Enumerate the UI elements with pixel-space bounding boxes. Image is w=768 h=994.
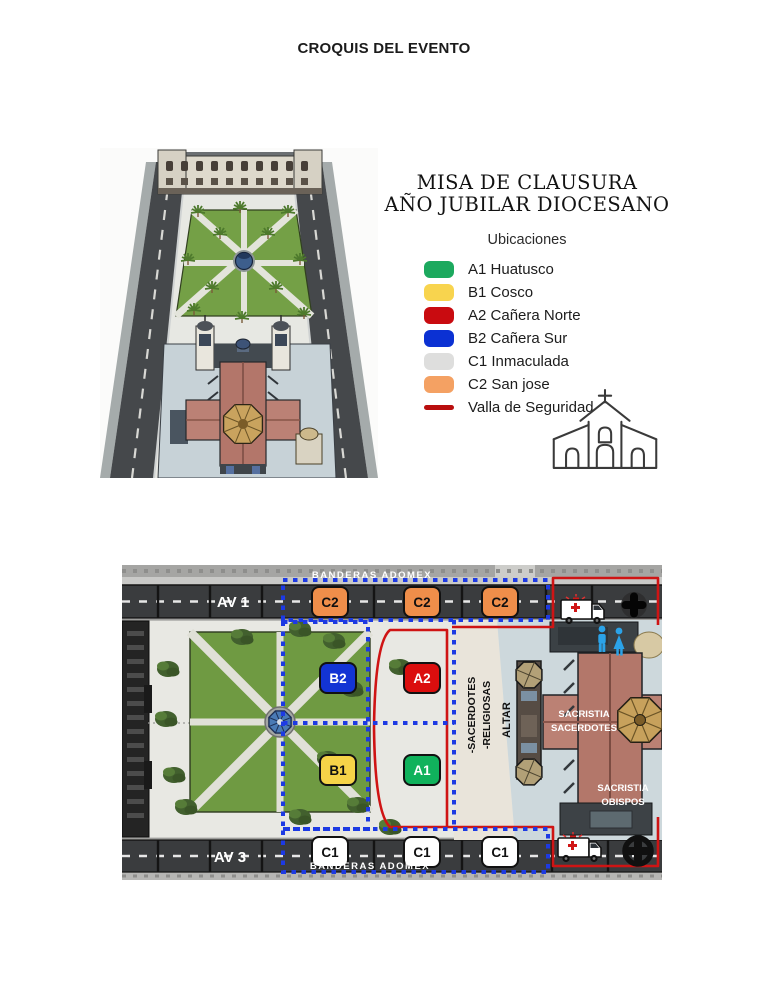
- zone-badge-c2-3: C2: [482, 587, 518, 617]
- legend-item-c1: C1 Inmaculada: [424, 350, 671, 373]
- zone-label-b1: B1: [329, 763, 347, 778]
- page-title: CROQUIS DEL EVENTO: [0, 40, 768, 57]
- church-line-drawing: [551, 388, 659, 470]
- zone-label-a2: A2: [413, 671, 430, 686]
- event-title-line1: MISA DE CLAUSURA: [383, 172, 671, 194]
- medical-cross-icon-bottom: [625, 838, 651, 864]
- aerial-palace-building: [158, 150, 322, 194]
- zone-label-c1-1: C1: [321, 845, 339, 860]
- zone-badge-b1: B1: [320, 755, 356, 785]
- event-map-drawing: C2 C2 C2 B2 A2: [122, 565, 662, 880]
- legend-swatch-c2: [424, 376, 454, 393]
- banner-label-top: BANDERAS ADOMEX: [312, 570, 432, 581]
- label-religiosas: -RELIGIOSAS: [481, 681, 493, 749]
- event-title-line2: AÑO JUBILAR DIOCESANO: [383, 194, 671, 216]
- map-altar-structure: [516, 661, 542, 785]
- legend-label-c2: C2 San jose: [468, 376, 550, 393]
- banner-label-bottom: BANDERAS ADOMEX: [310, 861, 430, 872]
- legend-item-b2: B2 Cañera Sur: [424, 327, 671, 350]
- legend-swatch-a1: [424, 261, 454, 278]
- zone-badge-a1: A1: [404, 755, 440, 785]
- label-sacerdotes: -SACERDOTES: [466, 677, 478, 753]
- event-info-panel: MISA DE CLAUSURA AÑO JUBILAR DIOCESANO U…: [383, 172, 671, 419]
- zone-label-a1: A1: [413, 763, 431, 778]
- legend-label-b2: B2 Cañera Sur: [468, 330, 567, 347]
- document-page: CROQUIS DEL EVENTO: [0, 0, 768, 994]
- legend-label-a1: A1 Huatusco: [468, 261, 554, 278]
- zone-label-c2-1: C2: [321, 595, 338, 610]
- legend-item-b1: B1 Cosco: [424, 281, 671, 304]
- legend-swatch-b2: [424, 330, 454, 347]
- legend-swatch-valla: [424, 405, 454, 410]
- legend-label-c1: C1 Inmaculada: [468, 353, 569, 370]
- aerial-park: [176, 201, 312, 323]
- event-map: C2 C2 C2 B2 A2: [122, 565, 662, 880]
- legend-title: Ubicaciones: [383, 232, 671, 248]
- label-sacristia-obispos-2: OBISPOS: [601, 797, 644, 808]
- zone-badge-b2: B2: [320, 663, 356, 693]
- legend-item-a2: A2 Cañera Norte: [424, 304, 671, 327]
- label-sacristia-sacerdotes-1: SACRISTIA: [558, 709, 609, 720]
- label-sacristia-sacerdotes-2: SACERDOTES: [551, 723, 617, 734]
- legend-swatch-b1: [424, 284, 454, 301]
- label-sacristia-obispos-1: SACRISTIA: [597, 783, 648, 794]
- legend-label-b1: B1 Cosco: [468, 284, 533, 301]
- street-label-av3: AV 3: [214, 849, 246, 866]
- zone-label-c1-3: C1: [491, 845, 509, 860]
- aerial-view-illustration: [100, 148, 378, 478]
- zone-badge-c1-3: C1: [482, 837, 518, 867]
- medical-cross-icon-top: [621, 592, 647, 618]
- street-label-av1: AV 1: [217, 594, 249, 611]
- legend-swatch-c1: [424, 353, 454, 370]
- legend-swatch-a2: [424, 307, 454, 324]
- zone-label-c2-3: C2: [491, 595, 508, 610]
- zone-label-c1-2: C1: [413, 845, 431, 860]
- aerial-view-image: [100, 148, 378, 478]
- zone-badge-a2: A2: [404, 663, 440, 693]
- zone-label-c2-2: C2: [413, 595, 430, 610]
- map-building-left: [122, 621, 152, 837]
- zone-badge-c2-1: C2: [312, 587, 348, 617]
- zone-badge-c2-2: C2: [404, 587, 440, 617]
- legend-label-a2: A2 Cañera Norte: [468, 307, 581, 324]
- label-altar: ALTAR: [501, 702, 513, 738]
- zone-label-b2: B2: [329, 671, 346, 686]
- church-icon: [551, 388, 659, 470]
- legend-item-a1: A1 Huatusco: [424, 258, 671, 281]
